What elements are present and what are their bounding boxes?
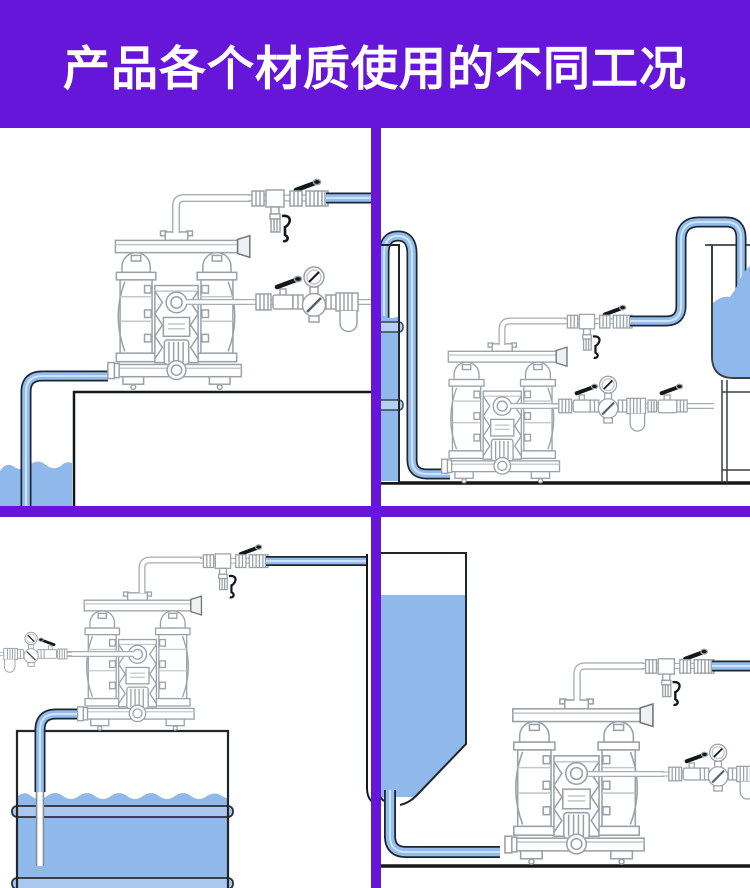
panel-top-right-diagram: [381, 128, 750, 506]
horizontal-divider: [0, 506, 750, 517]
air-regulator-filter: [248, 267, 371, 332]
tee-spray-gun: [200, 545, 268, 597]
tee-spray-gun: [248, 179, 328, 241]
tee-spray-gun: [564, 305, 632, 357]
air-regulator-filter: [552, 376, 663, 431]
discharge-pipe: [577, 666, 644, 701]
hopper-tank: [381, 553, 466, 805]
suction-pipe: [390, 790, 500, 852]
pump: [78, 592, 202, 730]
header-banner: 产品各个材质使用的不同工况: [0, 0, 750, 128]
discharge-pipe: [142, 560, 202, 593]
drum-liquid: [381, 314, 399, 481]
pump: [108, 231, 250, 389]
air-regulator-filter: [662, 744, 750, 799]
discharge-pipe: [502, 321, 566, 345]
panel-bottom-right-diagram: [381, 517, 750, 888]
page: 产品各个材质使用的不同工况: [0, 0, 750, 888]
supply-drum: [381, 236, 450, 482]
pump: [442, 343, 567, 483]
air-regulator-filter: [0, 632, 72, 672]
platform-tank: [74, 392, 371, 506]
discharge-pipe: [176, 198, 250, 233]
tee-spray-gun: [642, 649, 714, 705]
tank-liquid: [713, 266, 750, 377]
pump: [505, 699, 653, 864]
panel-bottom-left-diagram: [0, 517, 371, 888]
page-title: 产品各个材质使用的不同工况: [63, 30, 687, 99]
air-ball-valve: [648, 384, 687, 413]
pit-liquid: [0, 462, 72, 507]
hopper-liquid: [381, 595, 466, 797]
panel-top-left-diagram: [0, 128, 371, 506]
